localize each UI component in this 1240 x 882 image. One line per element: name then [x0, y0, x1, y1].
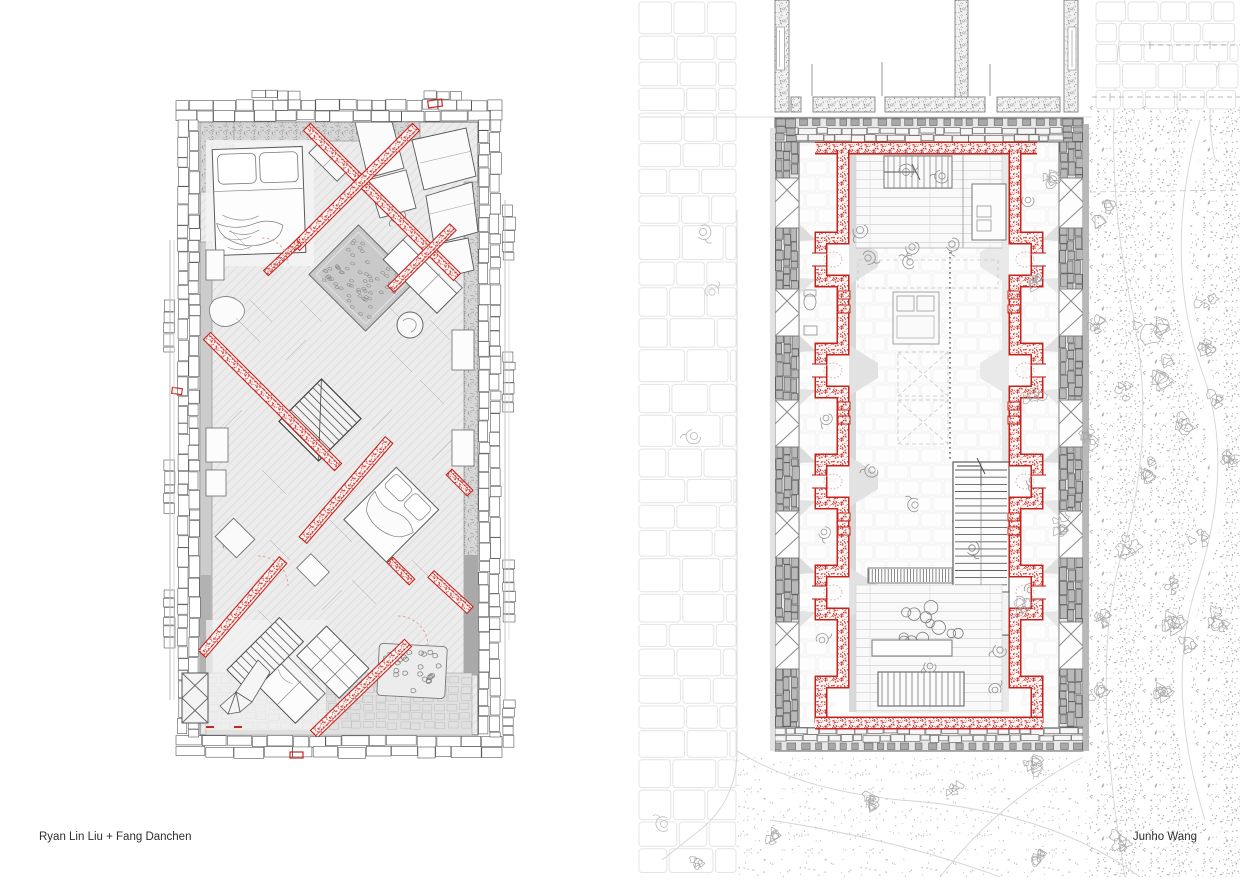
svg-text:Junho Wang: Junho Wang	[1133, 831, 1197, 843]
svg-text:Ryan Lin Liu + Fang Danchen: Ryan Lin Liu + Fang Danchen	[39, 831, 191, 843]
